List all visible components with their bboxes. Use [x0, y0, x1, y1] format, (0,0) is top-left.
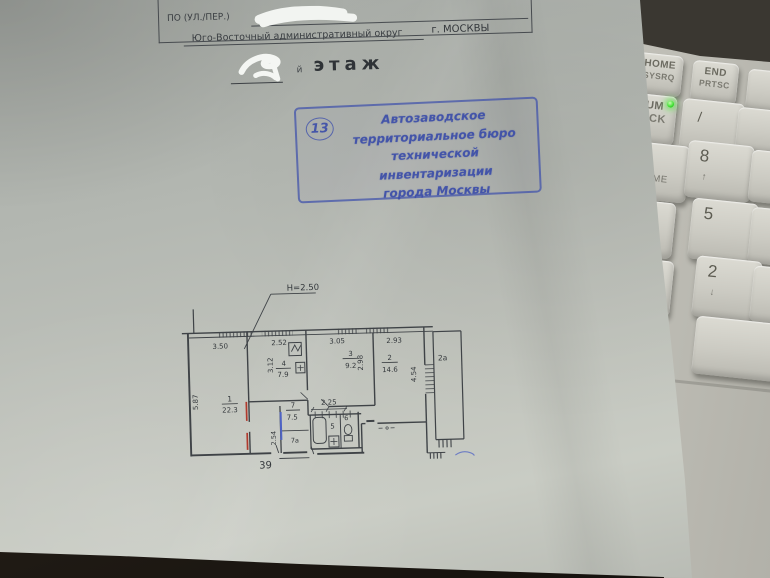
apartment-number: 39	[259, 460, 272, 471]
room-7a-number: 7а	[291, 436, 299, 444]
photo-of-document: HOME SYSRQ END PRTSC NUM LOCK / 7 HOME	[0, 0, 770, 578]
key-sublabel: PRTSC	[691, 77, 738, 92]
dim-width-room1: 3.50	[212, 342, 228, 350]
ceiling-height-label: H=2.50	[287, 283, 320, 294]
header-form-box: ПО (УЛ./ПЕР.) Юго-Восточный администрати…	[157, 0, 533, 43]
key-8: 8 ↑	[683, 140, 755, 204]
dim-width-room4: 2.52	[271, 339, 287, 347]
room-2-number: 2	[387, 354, 392, 362]
dim-width-room3: 3.05	[329, 337, 345, 345]
stamp-number: 13	[305, 117, 334, 141]
num-lock-led	[667, 100, 675, 108]
room-2a-number: 2а	[438, 353, 448, 362]
key-sublabel: ↑	[701, 171, 752, 187]
room-7-area: 7.5	[287, 413, 298, 421]
room-3-number: 3	[348, 350, 353, 358]
dim-depth-room2: 4.54	[410, 366, 418, 382]
plan-walls	[181, 289, 465, 466]
key-label: END	[704, 66, 727, 79]
room-3-area: 9.2	[345, 362, 356, 370]
floor-word: этаж	[313, 53, 385, 76]
room-6-number: 6	[344, 414, 348, 422]
room-1-area: 22.3	[222, 406, 238, 414]
key-label: 8	[699, 146, 755, 172]
dim-depth-room1: 5.87	[192, 394, 200, 410]
floor-plan: H=2.50 3.50 2.52 3.05 2.93 5.87 3.12 2.9…	[174, 273, 479, 479]
city-text: г. МОСКВЫ	[431, 23, 489, 36]
room-5-number: 5	[330, 422, 335, 430]
room-4-area: 7.9	[277, 371, 288, 379]
whiteout-floor-scribble	[233, 50, 296, 86]
dim-hall: 2.25	[321, 398, 337, 406]
floor-suffix: й	[296, 65, 302, 75]
dim-depth-room4: 3.12	[267, 357, 275, 373]
bti-stamp: 13 Автозаводское территориальное бюро те…	[294, 97, 542, 204]
street-field-label: ПО (УЛ./ПЕР.)	[167, 12, 230, 24]
stamp-text: Автозаводское территориальное бюро техни…	[334, 104, 536, 206]
room-1-number: 1	[227, 394, 232, 403]
key-0-partial	[691, 315, 770, 382]
room-7-number: 7	[291, 402, 296, 410]
whiteout-scribble	[251, 5, 364, 30]
plan-labels: H=2.50 3.50 2.52 3.05 2.93 5.87 3.12 2.9…	[189, 279, 451, 473]
room-2-area: 14.6	[382, 366, 398, 374]
dim-depth-room3: 2.98	[357, 355, 365, 371]
dim-width-room2: 2.93	[386, 337, 402, 345]
dim-niche: 2.54	[270, 431, 278, 446]
room-4-number: 4	[281, 360, 286, 368]
